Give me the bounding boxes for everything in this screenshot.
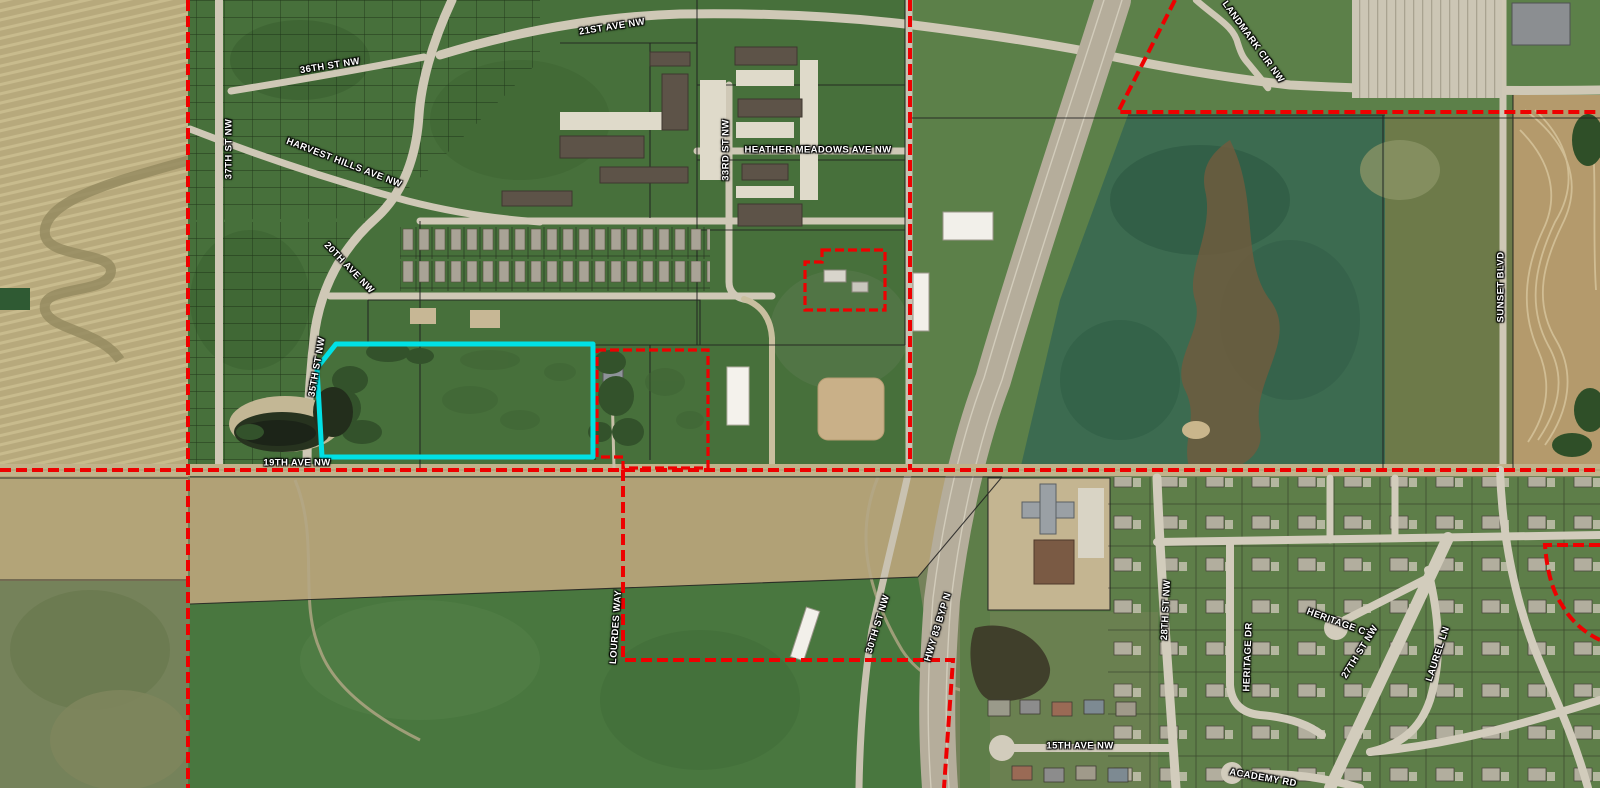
aerial-imagery — [0, 0, 1600, 788]
townhome-row-1 — [400, 227, 710, 259]
warehouse — [943, 212, 993, 240]
map-canvas[interactable]: 21ST AVE NW36TH ST NW37TH ST NWHARVEST H… — [0, 0, 1600, 788]
riding-arena — [818, 378, 884, 440]
farm-field-west — [0, 0, 190, 470]
green-field-south — [188, 577, 952, 788]
commercial-building — [1512, 3, 1570, 45]
barn — [727, 367, 749, 425]
parking-lot — [1352, 0, 1502, 98]
townhome-row-2 — [400, 261, 710, 291]
